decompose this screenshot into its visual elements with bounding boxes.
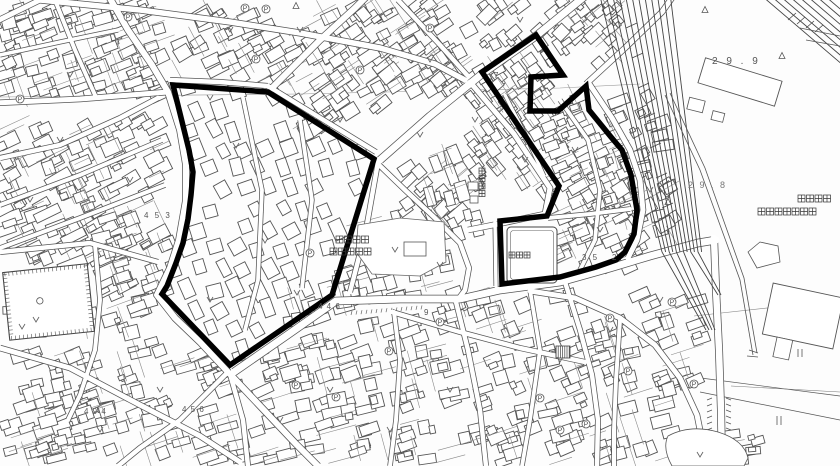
svg-text:4 5 3: 4 5 3 — [144, 211, 172, 220]
svg-text:P: P — [264, 7, 269, 14]
svg-text:P: P — [584, 422, 589, 429]
svg-text:P: P — [126, 15, 131, 22]
svg-text:P: P — [254, 57, 259, 64]
svg-text:P: P — [626, 369, 631, 376]
svg-text:P: P — [558, 428, 563, 435]
svg-text:P: P — [428, 26, 433, 33]
svg-text:9: 9 — [424, 308, 429, 317]
svg-text:P: P — [692, 382, 697, 389]
svg-text:P: P — [438, 320, 443, 327]
svg-text:4 4 6: 4 4 6 — [318, 302, 341, 311]
svg-text:P: P — [18, 97, 23, 104]
svg-text:4 9 4: 4 9 4 — [84, 407, 107, 416]
svg-text:P: P — [387, 349, 392, 356]
svg-text:P: P — [358, 68, 363, 75]
svg-text:P: P — [334, 395, 339, 402]
svg-text:P: P — [308, 251, 313, 258]
svg-text:P: P — [670, 300, 675, 307]
svg-text:P: P — [608, 316, 613, 323]
svg-text:2 9 . 9: 2 9 . 9 — [712, 56, 761, 67]
svg-text:3 5: 3 5 — [582, 253, 599, 262]
svg-text:4 5 6: 4 5 6 — [182, 405, 205, 414]
svg-text:P: P — [243, 6, 248, 13]
svg-text:P: P — [294, 383, 299, 390]
svg-text:2 9 . 8: 2 9 . 8 — [688, 180, 727, 190]
svg-text:2: 2 — [612, 253, 617, 262]
svg-text:7: 7 — [494, 71, 499, 80]
svg-text:P: P — [538, 396, 543, 403]
